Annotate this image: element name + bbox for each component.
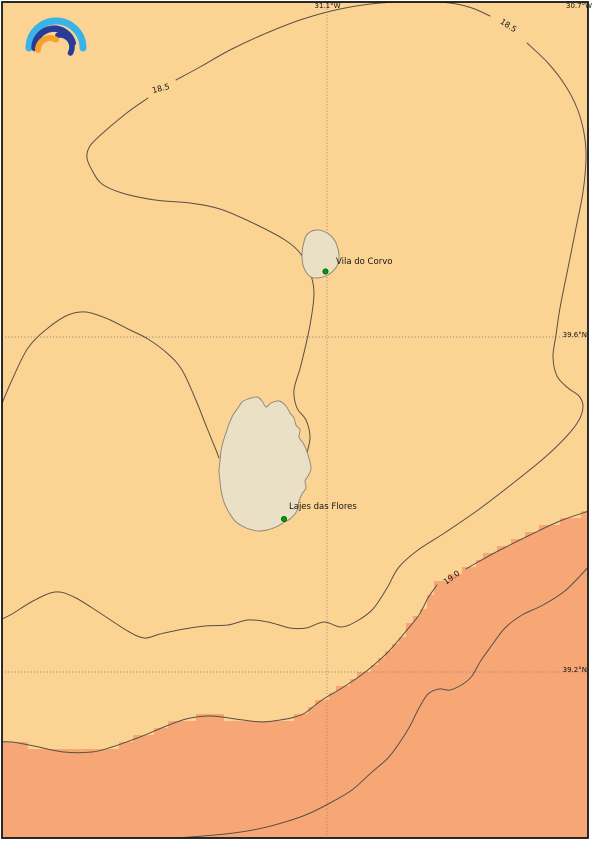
map-canvas bbox=[0, 0, 600, 845]
lon-label-31-1w: 31.1°W bbox=[309, 3, 346, 10]
green-station-dot-vila-do-corvo bbox=[323, 269, 328, 274]
lat-label-39-2n: 39.2°N bbox=[557, 667, 587, 674]
sst-contour-map-figure: 31.1°W 30.7°W 39.6°N 39.2°N 18.5 18.5 19… bbox=[0, 0, 600, 845]
green-station-dot-lajes-das-flores bbox=[281, 516, 286, 521]
lat-label-39-6n: 39.6°N bbox=[557, 332, 587, 339]
place-label-vila-do-corvo: Vila do Corvo bbox=[336, 258, 392, 267]
place-label-lajes-das-flores: Lajes das Flores bbox=[289, 503, 357, 512]
lon-label-30-7w: 30.7°W bbox=[566, 3, 592, 10]
